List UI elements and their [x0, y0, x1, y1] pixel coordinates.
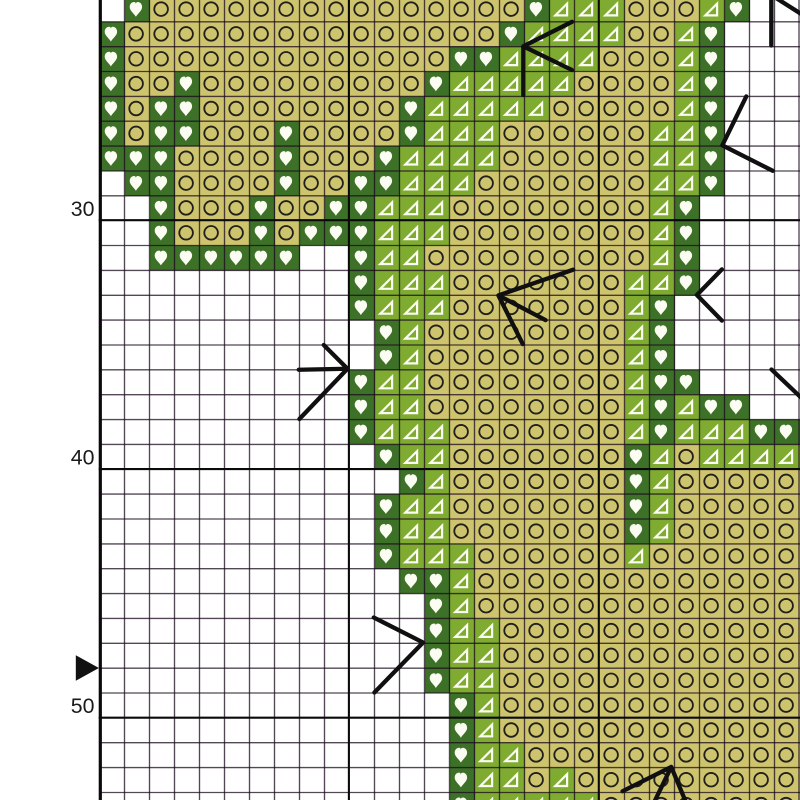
svg-text:50: 50 [71, 694, 95, 718]
svg-text:40: 40 [71, 446, 95, 470]
svg-text:30: 30 [71, 197, 95, 221]
